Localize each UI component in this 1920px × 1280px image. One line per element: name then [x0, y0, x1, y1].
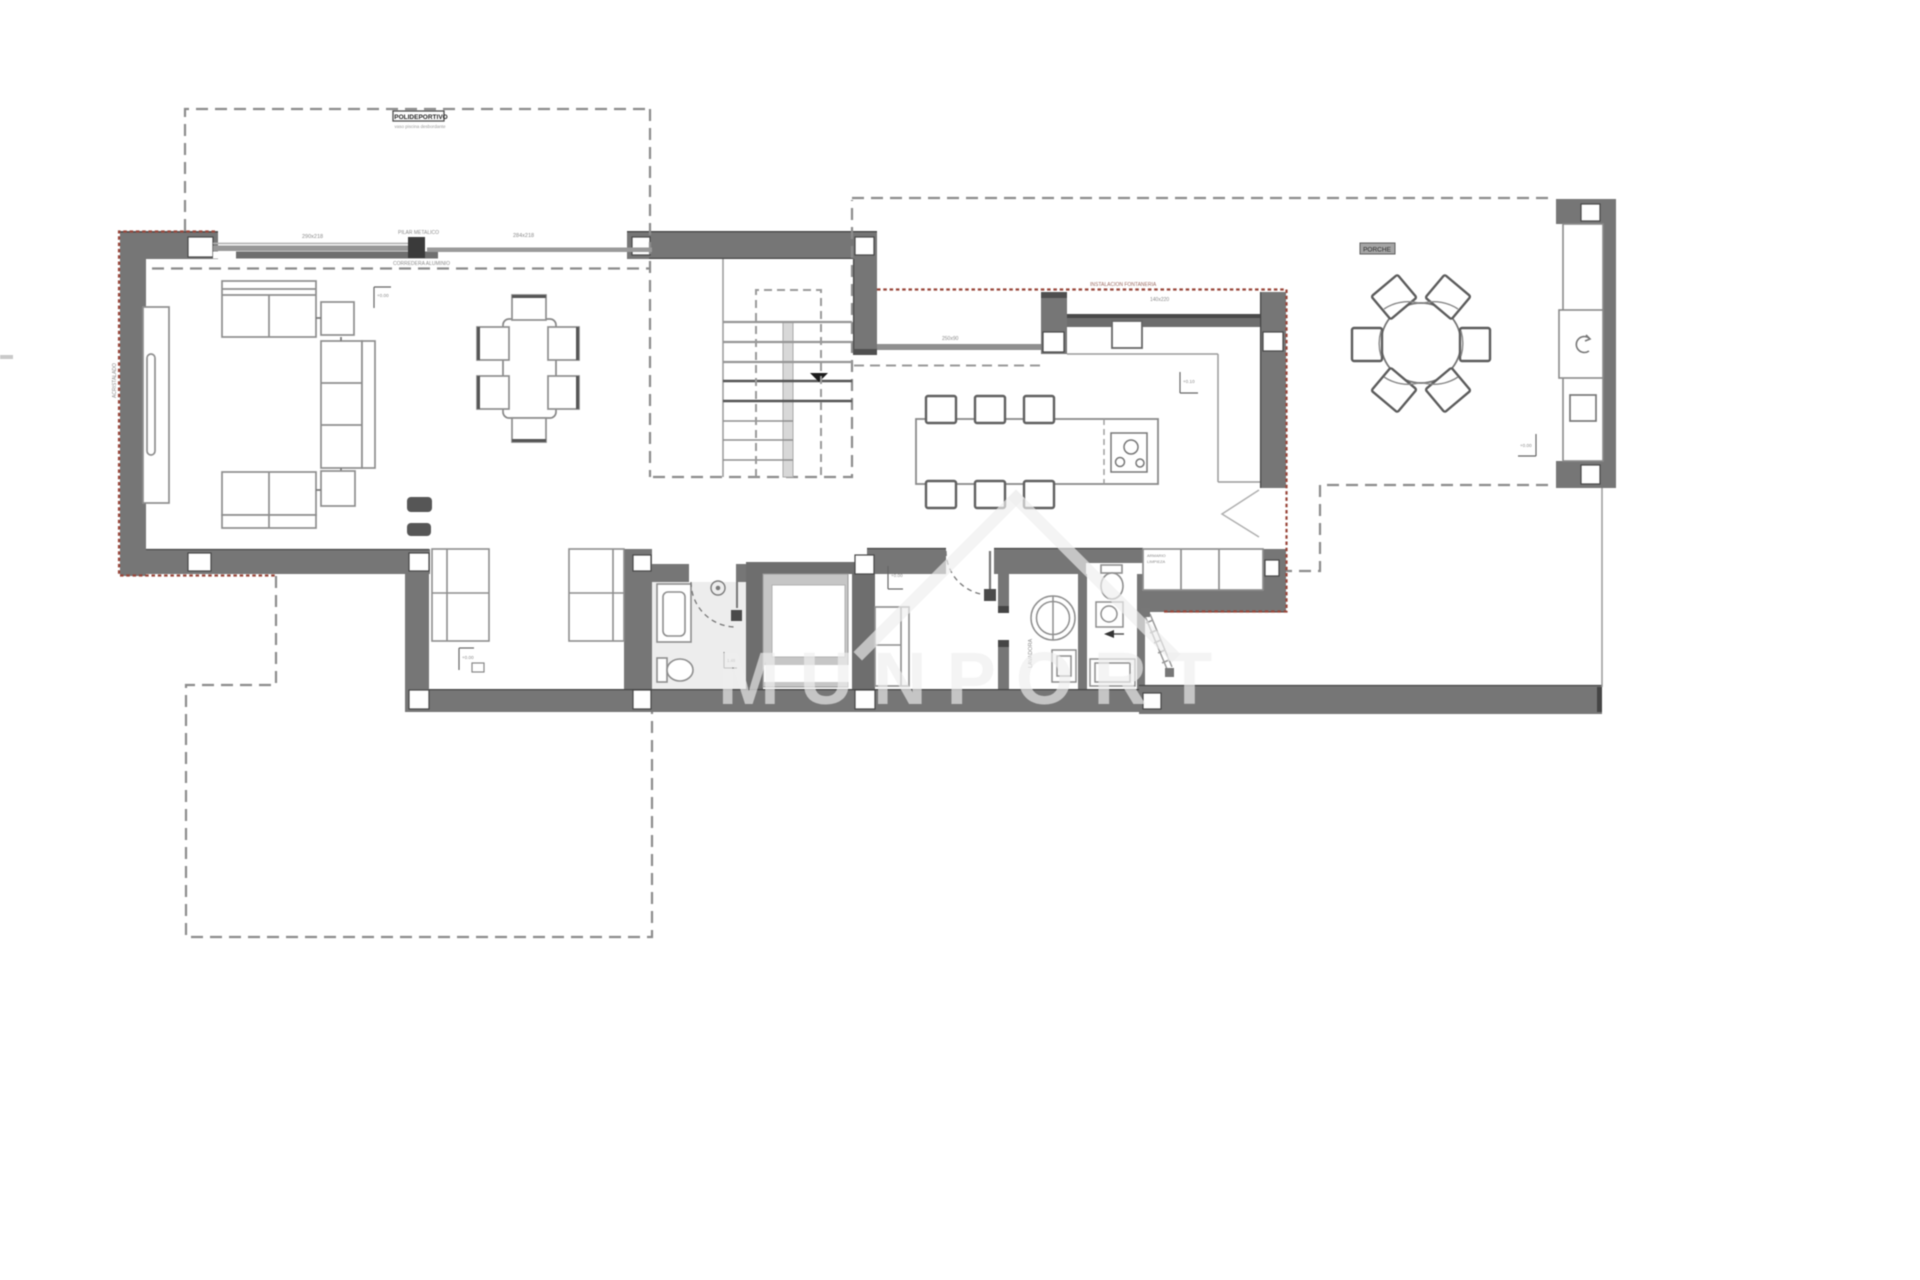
svg-text:+0.00: +0.00 — [462, 655, 474, 660]
svg-text:140x220: 140x220 — [1150, 297, 1169, 303]
svg-text:CORREDERA ALUMINIO: CORREDERA ALUMINIO — [393, 261, 450, 267]
svg-text:+0.00: +0.00 — [1520, 443, 1532, 448]
svg-text:PORCHE: PORCHE — [1363, 247, 1391, 254]
svg-text:LIMPIEZA: LIMPIEZA — [1147, 559, 1166, 564]
svg-text:vaso piscina desbordante: vaso piscina desbordante — [394, 124, 446, 129]
svg-text:290x218: 290x218 — [302, 234, 323, 240]
svg-text:PILAR METALICO: PILAR METALICO — [398, 230, 439, 236]
svg-text:250x90: 250x90 — [942, 336, 959, 342]
svg-text:+0.10: +0.10 — [1183, 379, 1195, 384]
svg-text:MUNPORT: MUNPORT — [718, 637, 1232, 720]
svg-text:+0.00: +0.00 — [377, 293, 389, 298]
svg-text:+0.00: +0.00 — [891, 573, 903, 578]
svg-text:INSTALACION FONTANERIA: INSTALACION FONTANERIA — [1090, 282, 1157, 288]
svg-text:284x218: 284x218 — [513, 233, 534, 239]
svg-text:ACRISTALADO: ACRISTALADO — [112, 363, 118, 398]
svg-text:POLIDEPORTIVO: POLIDEPORTIVO — [394, 114, 447, 121]
svg-text:ARMARIO: ARMARIO — [1147, 553, 1166, 558]
